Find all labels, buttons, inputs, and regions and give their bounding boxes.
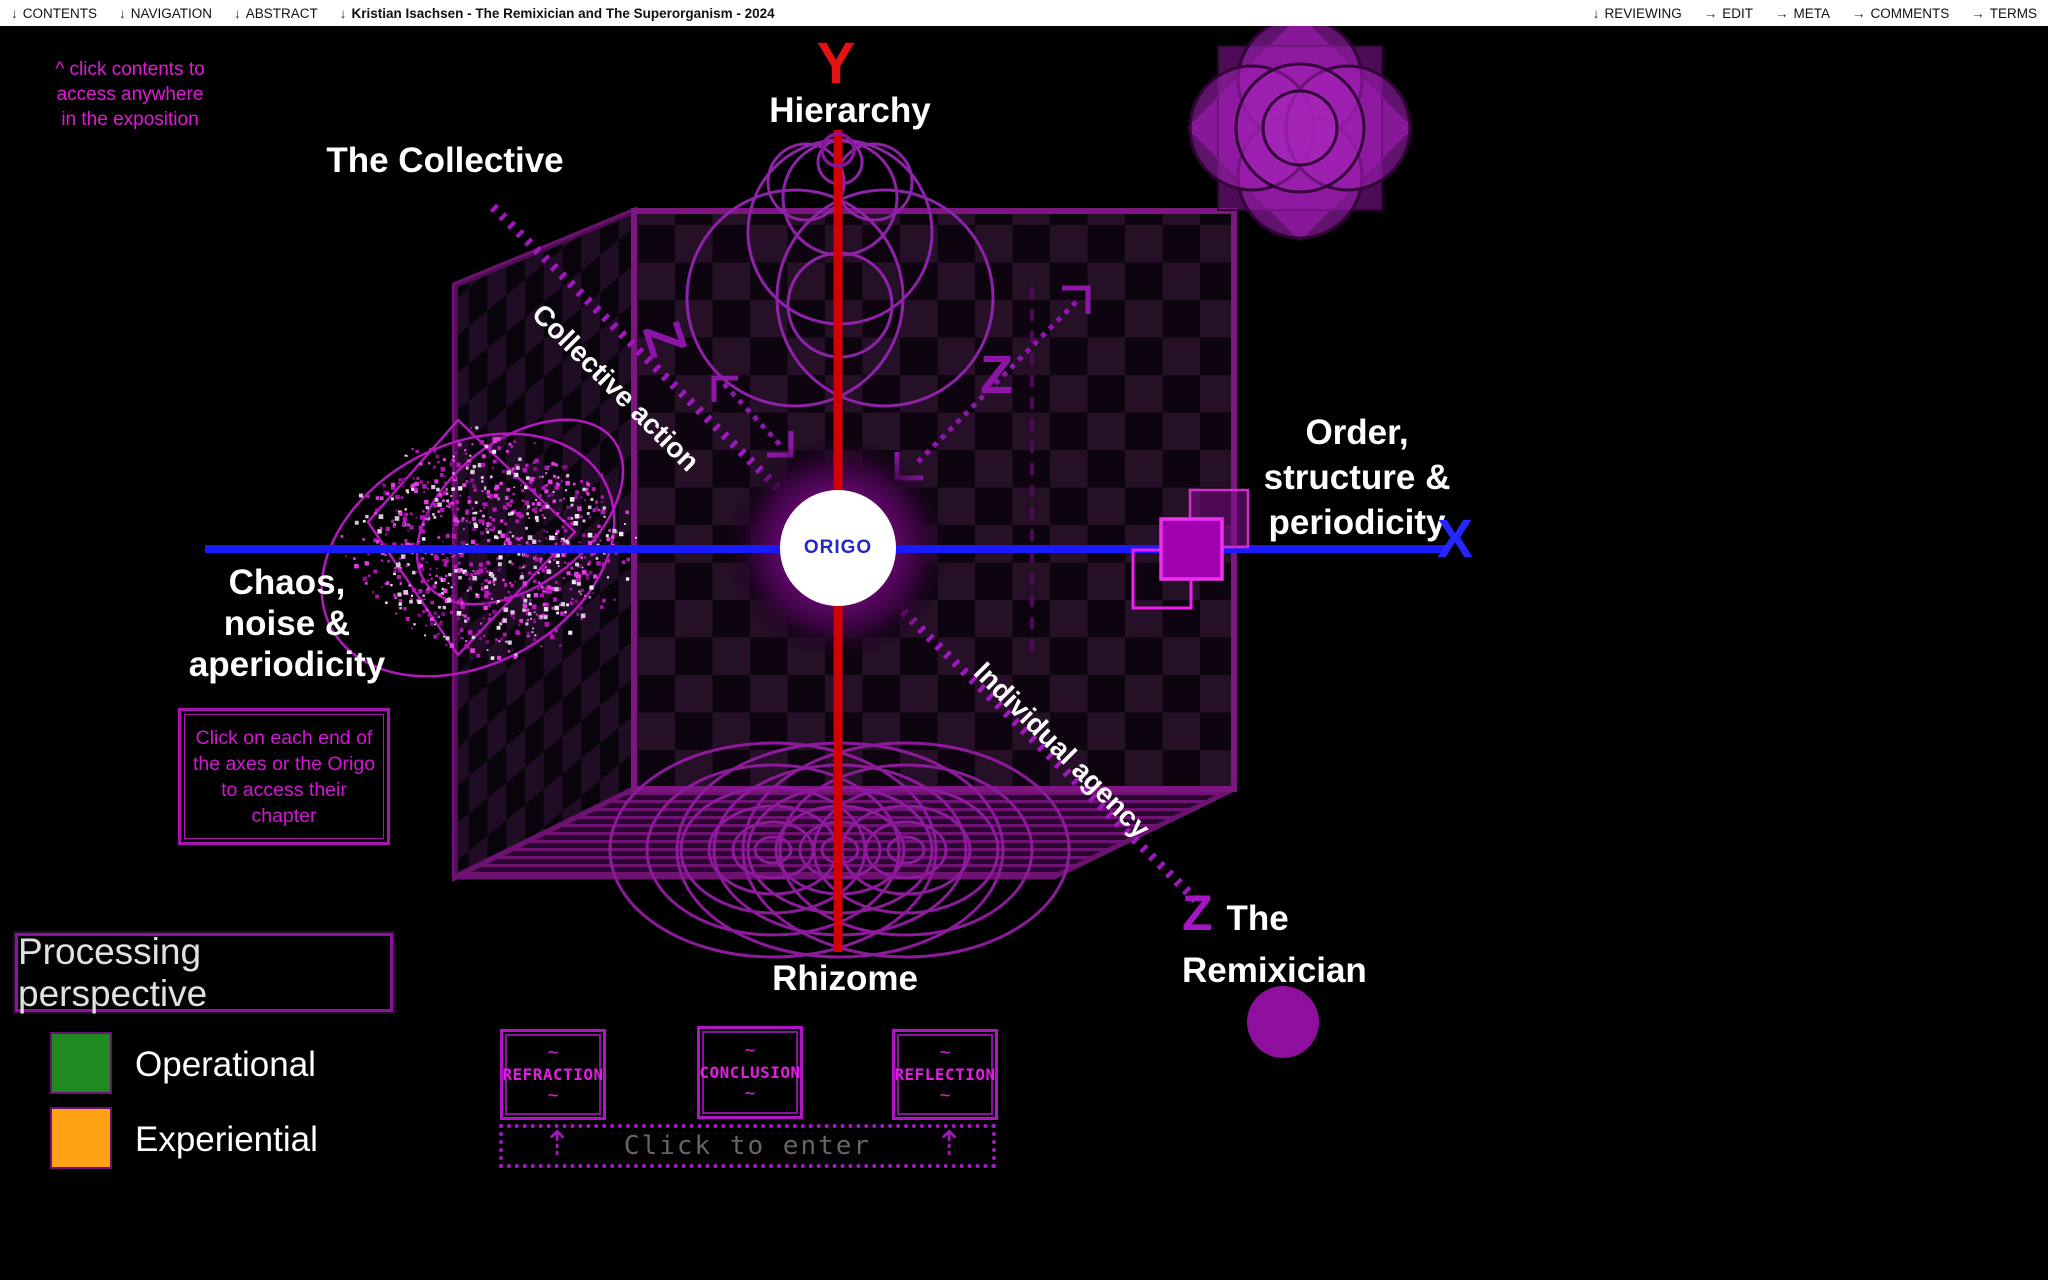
down-arrow-icon: ↓	[234, 6, 241, 21]
hint-line: access anywhere	[55, 82, 204, 107]
menu-item-terms[interactable]: → TERMS	[1971, 6, 2037, 21]
exposition-title-label: Kristian Isachsen - The Remixician and T…	[352, 6, 775, 21]
y-axis-letter: Y	[817, 30, 856, 97]
menu-item-label: NAVIGATION	[131, 6, 212, 21]
label-line: Chaos,	[189, 562, 385, 603]
x-axis-letter: X	[1437, 508, 1473, 570]
down-arrow-icon: ↓	[119, 6, 126, 21]
z-axis-letter-inner: Z	[980, 348, 1013, 402]
menu-item-abstract[interactable]: ↓ ABSTRACT	[234, 6, 318, 21]
menu-item-contents[interactable]: ↓ CONTENTS	[11, 6, 97, 21]
click-to-enter-label: Click to enter	[624, 1131, 871, 1161]
label-line: aperiodicity	[189, 644, 385, 685]
y-axis-top-label-hierarchy[interactable]: Hierarchy	[769, 90, 930, 131]
tilde-decor: ~	[548, 1045, 559, 1061]
contents-hint-note: ^ click contents to access anywhere in t…	[55, 57, 204, 132]
origo-label[interactable]: ORIGO	[804, 537, 872, 559]
chapter-button-reflection[interactable]: ~ REFLECTION ~	[892, 1029, 998, 1120]
chapter-button-conclusion[interactable]: ~ CONCLUSION ~	[697, 1026, 803, 1119]
instruction-box: Click on each end of the axes or the Ori…	[178, 708, 390, 845]
label-line: Order,	[1264, 410, 1451, 455]
hint-line: in the exposition	[55, 107, 204, 132]
x-axis-left-label-chaos[interactable]: Chaos, noise & aperiodicity	[189, 562, 385, 685]
tilde-decor: ~	[745, 1043, 756, 1059]
legend-label-experiential: Experiential	[135, 1120, 318, 1160]
menu-item-label: REVIEWING	[1604, 6, 1681, 21]
menu-item-label: META	[1794, 6, 1831, 21]
remixician-node[interactable]	[1247, 986, 1319, 1058]
legend-title: Processing perspective	[18, 931, 390, 1015]
dotted-up-arrow-icon: ⇡	[543, 1124, 572, 1164]
right-arrow-icon: →	[1775, 6, 1789, 21]
x-axis-right-label-order[interactable]: Order, structure & periodicity	[1264, 410, 1451, 545]
instruction-line: chapter	[181, 803, 387, 829]
menu-item-label: EDIT	[1722, 6, 1753, 21]
y-axis-bottom-label-rhizome[interactable]: Rhizome	[772, 958, 918, 999]
down-arrow-icon: ↓	[340, 6, 347, 21]
menu-item-label: TERMS	[1990, 6, 2037, 21]
down-arrow-icon: ↓	[11, 6, 18, 21]
instruction-line: to access their	[181, 777, 387, 803]
tilde-decor: ~	[940, 1045, 951, 1061]
menu-bar: ↓ CONTENTS ↓ NAVIGATION ↓ ABSTRACT ↓ Kri…	[0, 0, 2048, 26]
down-arrow-icon: ↓	[1593, 6, 1600, 21]
instruction-line: Click on each end of	[181, 725, 387, 751]
legend-title-box: Processing perspective	[15, 933, 393, 1012]
dotted-up-arrow-icon: ⇡	[935, 1124, 964, 1164]
legend-swatch-experiential	[50, 1107, 112, 1169]
menu-item-meta[interactable]: → META	[1775, 6, 1830, 21]
mandala-motif	[1187, 15, 1413, 241]
label-line: periodicity	[1264, 500, 1451, 545]
z-axis-top-label-the-collective[interactable]: The Collective	[326, 140, 563, 181]
chapter-button-label: REFRACTION	[502, 1065, 603, 1084]
z-axis-bottom-label-remixician[interactable]: ZThe Remixician	[1182, 888, 1367, 993]
label-line: ZThe	[1182, 888, 1367, 948]
right-arrow-icon: →	[1704, 6, 1718, 21]
z-axis-letter-end: Z	[1182, 885, 1213, 941]
right-arrow-icon: →	[1971, 6, 1985, 21]
chapter-button-label: REFLECTION	[894, 1065, 995, 1084]
label-line-text: The	[1227, 899, 1289, 938]
legend-swatch-operational	[50, 1032, 112, 1094]
menu-item-label: CONTENTS	[23, 6, 97, 21]
chapter-button-refraction[interactable]: ~ REFRACTION ~	[500, 1029, 606, 1120]
menu-item-label: ABSTRACT	[246, 6, 318, 21]
chapter-button-label: CONCLUSION	[699, 1063, 800, 1082]
menu-item-edit[interactable]: → EDIT	[1704, 6, 1753, 21]
tilde-decor: ~	[548, 1088, 559, 1104]
menu-item-comments[interactable]: → COMMENTS	[1852, 6, 1949, 21]
instruction-line: the axes or the Origo	[181, 751, 387, 777]
legend-label-operational: Operational	[135, 1045, 316, 1085]
label-line: structure &	[1264, 455, 1451, 500]
tilde-decor: ~	[940, 1088, 951, 1104]
menu-left: ↓ CONTENTS ↓ NAVIGATION ↓ ABSTRACT ↓ Kri…	[0, 6, 786, 21]
menu-item-reviewing[interactable]: ↓ REVIEWING	[1593, 6, 1682, 21]
click-to-enter-strip[interactable]: ⇡ Click to enter ⇡	[499, 1124, 996, 1168]
label-line: noise &	[189, 603, 385, 644]
menu-item-navigation[interactable]: ↓ NAVIGATION	[119, 6, 212, 21]
menu-item-label: COMMENTS	[1871, 6, 1950, 21]
tilde-decor: ~	[745, 1086, 756, 1102]
menu-right: ↓ REVIEWING → EDIT → META → COMMENTS → T…	[1582, 6, 2048, 21]
right-arrow-icon: →	[1852, 6, 1866, 21]
label-line-text: Remixician	[1182, 948, 1367, 993]
hint-line: ^ click contents to	[55, 57, 204, 82]
exposition-page: ↓ CONTENTS ↓ NAVIGATION ↓ ABSTRACT ↓ Kri…	[0, 0, 2048, 1280]
exposition-title[interactable]: ↓ Kristian Isachsen - The Remixician and…	[340, 6, 775, 21]
